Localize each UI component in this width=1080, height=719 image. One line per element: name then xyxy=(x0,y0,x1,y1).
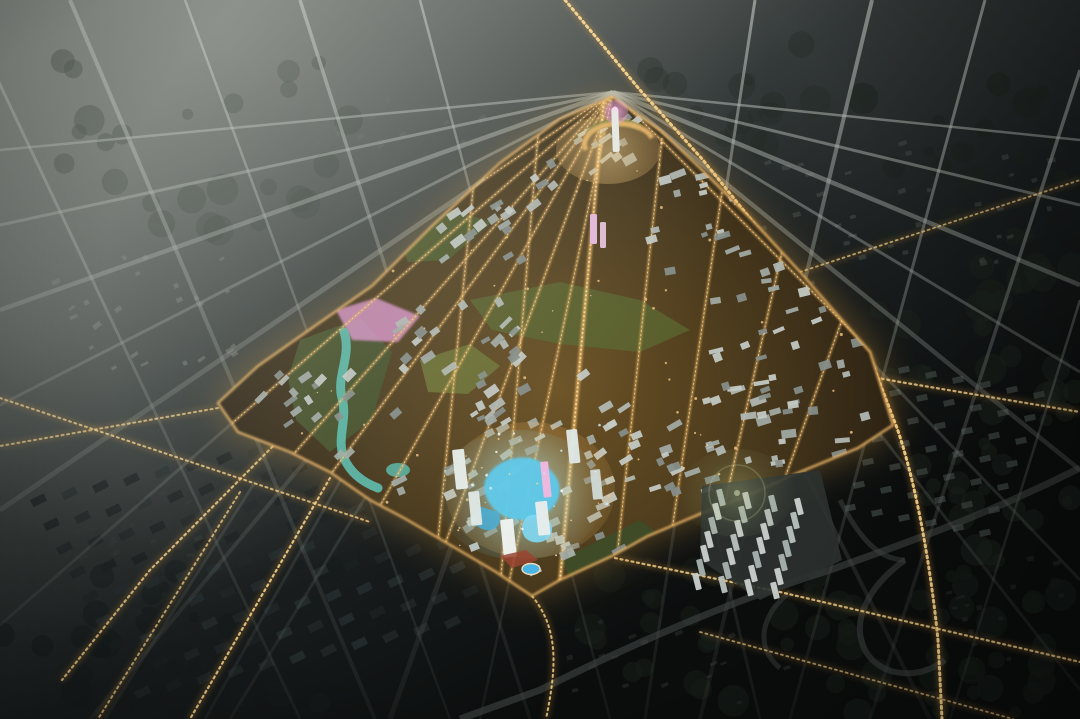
aerial-render xyxy=(0,0,1080,719)
render-canvas xyxy=(0,0,1080,719)
vignette xyxy=(0,0,1080,719)
